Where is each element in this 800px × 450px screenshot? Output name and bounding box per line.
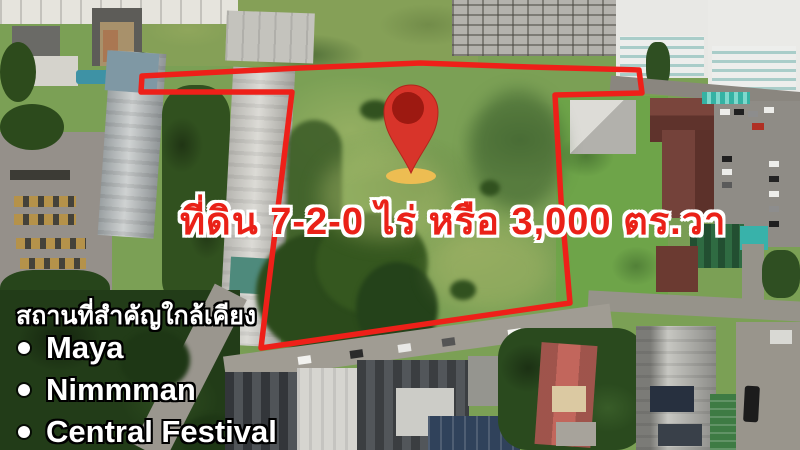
- bullet-icon: [18, 426, 30, 438]
- house-roof: [710, 394, 738, 450]
- building-roof: [225, 10, 315, 63]
- road: [742, 244, 764, 304]
- warehouse-roof-section: [105, 50, 160, 94]
- nearby-place: Central Festival: [18, 414, 277, 450]
- bush: [450, 280, 476, 300]
- truck-row: [20, 258, 86, 269]
- truck-row: [14, 214, 76, 225]
- patio: [556, 422, 596, 446]
- car: [722, 156, 732, 162]
- car: [752, 123, 764, 130]
- solar-roof: [658, 424, 702, 446]
- car: [769, 161, 779, 167]
- condo-windows: [712, 46, 796, 90]
- nearby-place: Maya: [18, 330, 124, 366]
- house-roof: [552, 386, 586, 412]
- house-roof: [570, 100, 636, 154]
- car: [722, 182, 732, 188]
- land-listing-photo: ที่ดิน 7-2-0 ไร่ หรือ 3,000 ตร.วา สถานที…: [0, 0, 800, 450]
- nearby-place-label: Central Festival: [46, 414, 277, 450]
- solar-roof: [650, 386, 694, 412]
- area-size-label: ที่ดิน 7-2-0 ไร่ หรือ 3,000 ตร.วา: [180, 190, 726, 251]
- nearby-place-label: Nimmman: [46, 372, 196, 408]
- shophouse-roofs: [297, 368, 357, 450]
- bullet-icon: [18, 342, 30, 354]
- car: [770, 330, 792, 344]
- bullet-icon: [18, 384, 30, 396]
- tree-cluster: [0, 104, 64, 150]
- car: [764, 107, 774, 113]
- car: [720, 109, 730, 115]
- car: [722, 169, 732, 175]
- car: [743, 386, 760, 423]
- tree-cluster: [762, 250, 800, 298]
- car: [748, 111, 758, 117]
- car: [734, 109, 744, 115]
- truck-row: [16, 238, 86, 249]
- truck-row: [10, 170, 70, 180]
- nearby-place: Nimmman: [18, 372, 196, 408]
- car: [769, 176, 779, 182]
- bush: [360, 100, 390, 120]
- car: [769, 221, 779, 227]
- house-roof: [656, 246, 698, 292]
- car: [769, 206, 779, 212]
- nearby-place-label: Maya: [46, 330, 124, 366]
- car: [769, 191, 779, 197]
- awning: [702, 92, 750, 104]
- truck-row: [14, 196, 76, 207]
- tree-cluster: [0, 42, 36, 102]
